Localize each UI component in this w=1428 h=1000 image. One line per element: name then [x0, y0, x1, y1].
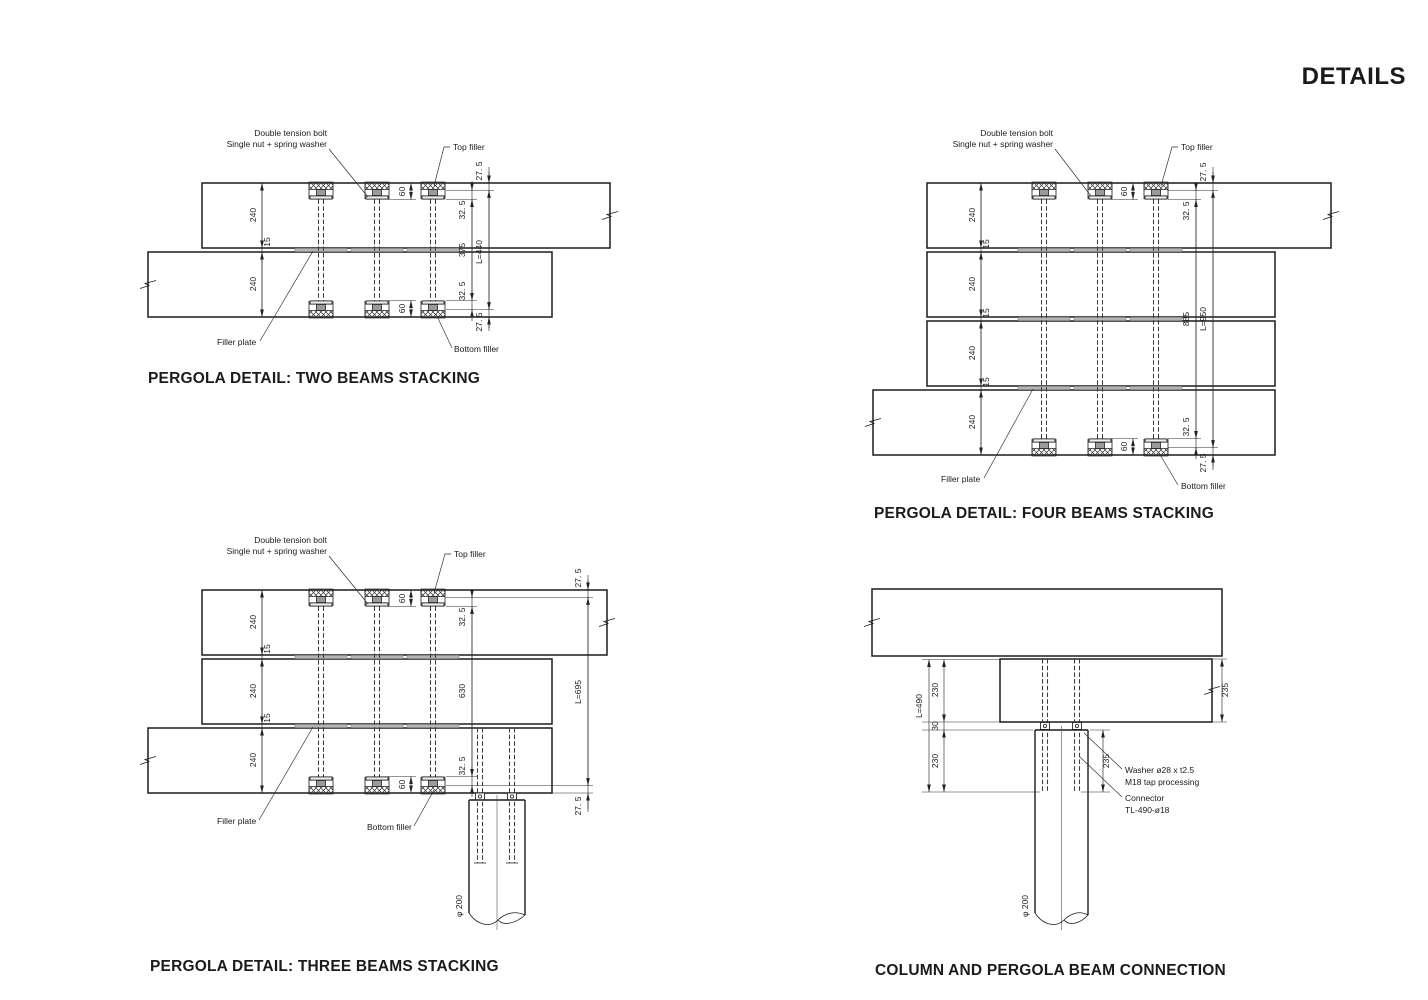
dim-filler-depth: 27. 5	[573, 568, 583, 587]
dim-recess: 60	[397, 187, 407, 197]
label-top-filler: Top filler	[454, 549, 486, 559]
label-filler-plate: Filler plate	[217, 337, 256, 347]
beam	[148, 728, 552, 793]
panel-two-beams: 240 15 240 60 60 32. 5 375 32. 5 27. 5 L…	[140, 128, 618, 387]
dim-recess: 60	[397, 304, 407, 314]
filler-plate	[1018, 317, 1070, 320]
washer-square	[476, 793, 485, 800]
dim-beam-height: 235	[1220, 683, 1230, 697]
dim-washer-offset: 32. 5	[457, 200, 467, 219]
dim-column-diameter: φ 200	[1020, 895, 1030, 917]
filler-plate	[1018, 386, 1070, 389]
washer-square	[1041, 723, 1050, 730]
dim-bolt-length: L=695	[573, 680, 583, 704]
filler-plate	[1074, 248, 1126, 251]
panel-title: PERGOLA DETAIL: TWO BEAMS STACKING	[148, 370, 480, 387]
dim-washer-offset: 32. 5	[457, 281, 467, 300]
filler-plate	[351, 248, 403, 251]
dim-inner-length: 885	[1181, 312, 1191, 326]
filler-plate	[1018, 248, 1070, 251]
filler-plate	[1130, 386, 1182, 389]
dim-recess: 60	[397, 594, 407, 604]
dim-washer-offset: 32. 5	[1181, 201, 1191, 220]
panel-column-connection: φ 200 L=490 230 30 230 235 235 Washer ø2…	[864, 589, 1230, 979]
dim-filler-depth: 27. 5	[1198, 453, 1208, 472]
dim-beam-height: 240	[248, 208, 258, 222]
dim-beam-height: 240	[967, 208, 977, 222]
panel-title: COLUMN AND PERGOLA BEAM CONNECTION	[875, 962, 1226, 979]
filler-plate	[351, 655, 403, 658]
label-tension-bolt: Single nut + spring washer	[953, 139, 1054, 149]
filler-plates	[295, 248, 459, 251]
leader-line	[414, 790, 434, 826]
label-washer: M18 tap processing	[1125, 777, 1199, 787]
label-bottom-filler: Bottom filler	[454, 344, 499, 354]
dim-filler-depth: 27. 5	[1198, 162, 1208, 181]
filler-plate	[295, 248, 347, 251]
filler-plate	[407, 655, 459, 658]
beam	[927, 183, 1331, 248]
beam	[1000, 659, 1212, 722]
beam	[148, 252, 552, 317]
panel-title: PERGOLA DETAIL: THREE BEAMS STACKING	[150, 958, 499, 975]
dim-washer-offset: 32. 5	[1181, 417, 1191, 436]
dim-beam-height: 240	[967, 415, 977, 429]
dim-gap: 15	[981, 239, 991, 249]
dim-column-diameter: φ 200	[454, 895, 464, 917]
dim-bolt-length: L=440	[474, 240, 484, 264]
filler-plate	[351, 724, 403, 727]
label-top-filler: Top filler	[1181, 142, 1213, 152]
dim-beam-height: 240	[967, 346, 977, 360]
sheet-title: DETAILS	[1302, 63, 1406, 90]
label-tension-bolt: Double tension bolt	[254, 535, 327, 545]
leader-line	[436, 314, 452, 348]
dim-gap: 15	[981, 377, 991, 387]
leader-line	[1161, 147, 1178, 186]
dim-recess: 60	[1119, 442, 1129, 452]
leader-line	[434, 554, 451, 593]
dim-connector-length: L=490	[914, 694, 924, 718]
washer-square	[1073, 723, 1082, 730]
label-top-filler: Top filler	[453, 142, 485, 152]
drawing-sheet: DETAILS 240 1	[0, 0, 1428, 1000]
dim-beam-height: 240	[248, 277, 258, 291]
dim-embed-depth: 235	[1101, 754, 1111, 768]
beam	[872, 589, 1222, 656]
label-bottom-filler: Bottom filler	[367, 822, 412, 832]
dim-filler-depth: 27. 5	[573, 796, 583, 815]
label-tension-bolt: Double tension bolt	[254, 128, 327, 138]
dim-bolt-length: L=950	[1198, 307, 1208, 331]
dim-washer-offset: 32. 5	[457, 756, 467, 775]
details-drawing: DETAILS 240 1	[0, 0, 1428, 1000]
dim-gap: 15	[262, 713, 272, 723]
dim-filler-depth: 27. 5	[474, 161, 484, 180]
dim-chain: 230	[930, 754, 940, 768]
dim-beam-height: 240	[248, 684, 258, 698]
filler-plate	[1130, 248, 1182, 251]
dim-gap: 15	[262, 237, 272, 247]
dim-recess: 60	[1119, 187, 1129, 197]
dim-recess: 60	[397, 780, 407, 790]
filler-plate	[407, 724, 459, 727]
beam	[927, 321, 1275, 386]
annotations: Washer ø28 x t2.5 M18 tap processing Con…	[1080, 733, 1199, 815]
beam	[927, 252, 1275, 317]
dim-filler-depth: 27. 5	[474, 312, 484, 331]
dim-gap: 15	[981, 308, 991, 318]
label-bottom-filler: Bottom filler	[1181, 481, 1226, 491]
leader-line	[434, 147, 450, 186]
dim-beam-height: 240	[248, 753, 258, 767]
label-filler-plate: Filler plate	[941, 474, 980, 484]
dim-beam-height: 240	[967, 277, 977, 291]
beam	[873, 390, 1275, 455]
beams	[140, 590, 615, 793]
washer-square	[508, 793, 517, 800]
label-washer: Washer ø28 x t2.5	[1125, 765, 1194, 775]
dim-chain: 230	[930, 683, 940, 697]
panel-three-beams: φ 200 240 15 240 15 240 60 60 32. 5 630	[140, 535, 615, 975]
panel-four-beams: 240 15 240 15 240 15 240 60 60 32. 5 885…	[865, 128, 1339, 522]
filler-plate	[1074, 386, 1126, 389]
dim-chain: 30	[930, 721, 940, 731]
label-tension-bolt: Single nut + spring washer	[227, 139, 328, 149]
filler-plate	[1130, 317, 1182, 320]
filler-plate	[295, 724, 347, 727]
dim-inner-length: 630	[457, 684, 467, 698]
dim-beam-height: 240	[248, 615, 258, 629]
label-filler-plate: Filler plate	[217, 816, 256, 826]
label-connector: Connector	[1125, 793, 1164, 803]
dim-gap: 15	[262, 644, 272, 654]
panel-title: PERGOLA DETAIL: FOUR BEAMS STACKING	[874, 505, 1214, 522]
label-connector: TL-490-ø18	[1125, 805, 1170, 815]
filler-plate	[295, 655, 347, 658]
filler-plate	[1074, 317, 1126, 320]
filler-plate	[407, 248, 459, 251]
label-tension-bolt: Single nut + spring washer	[227, 546, 328, 556]
leader-line	[1159, 453, 1178, 485]
dim-inner-length: 375	[457, 243, 467, 257]
label-tension-bolt: Double tension bolt	[980, 128, 1053, 138]
dim-washer-offset: 32. 5	[457, 607, 467, 626]
